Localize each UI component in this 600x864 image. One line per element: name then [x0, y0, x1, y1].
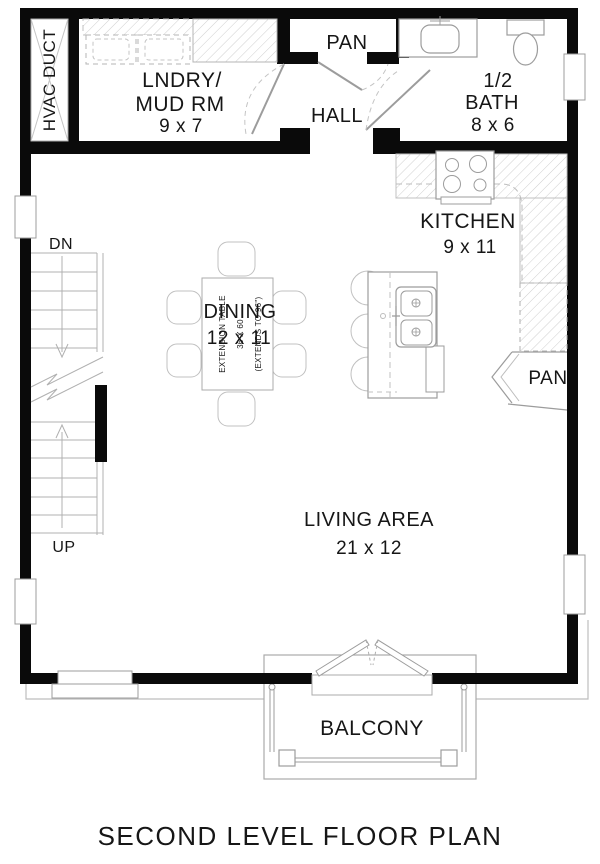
laundry-counter: [83, 19, 193, 35]
laundry-dims: 9 x 7: [159, 116, 203, 137]
pantry-bifold-door: [492, 352, 512, 403]
dining-chair: [218, 242, 255, 276]
wall-hall-bottom-left: [31, 141, 310, 154]
dining-chair: [218, 392, 255, 426]
window-bottom-sill: [52, 684, 138, 698]
wall-stair: [95, 385, 107, 462]
dining-chair: [272, 344, 306, 377]
floor-plan-page: EXTENSION TABLE 36 X 60 (EXTENDS TO 96"): [0, 0, 600, 864]
window-right-bath: [564, 54, 585, 100]
dining-dims: 12 x 11: [207, 328, 271, 349]
kitchen-label: KITCHEN: [420, 210, 516, 233]
pantry-top-label: PAN: [326, 32, 367, 54]
kitchen-dims: 9 x 11: [443, 237, 496, 258]
stove-handle: [441, 197, 491, 204]
refrigerator: [520, 283, 567, 351]
stair-break-line: [31, 372, 103, 402]
railing-post: [441, 750, 457, 766]
dining-chair: [272, 291, 306, 324]
wall-pantry-stub-left: [277, 52, 318, 64]
pantry-door-swing: [362, 64, 388, 90]
railing-post: [279, 750, 295, 766]
wall-left: [20, 8, 31, 196]
kitchen-island: [351, 271, 444, 398]
wall-right: [567, 8, 578, 55]
kitchen-counter-right: [520, 198, 567, 283]
bath-dims: 8 x 6: [471, 115, 515, 136]
pantry-bifold-door-inner: [501, 354, 519, 401]
wall-bottom: [132, 673, 312, 684]
living-label: LIVING AREA: [304, 509, 434, 531]
window-left-upper: [15, 196, 36, 238]
wall-pantry-stub-right: [367, 52, 399, 64]
window-left-lower: [15, 579, 36, 624]
wall-bottom: [432, 673, 578, 684]
wall-right: [567, 99, 578, 556]
dining-label: DINING: [204, 301, 277, 323]
window-bottom: [58, 671, 132, 684]
laundry-label-line2: MUD RM: [135, 93, 224, 116]
stove: [436, 151, 494, 199]
wall-hall-stub-right: [373, 128, 400, 142]
floor-plan-drawing: EXTENSION TABLE 36 X 60 (EXTENDS TO 96"): [0, 0, 600, 864]
bath-label-line1: 1/2: [483, 70, 512, 92]
toilet-bowl: [514, 33, 538, 65]
wall-bottom: [20, 673, 58, 684]
stair-break-line: [31, 357, 103, 387]
dining-chair: [167, 344, 201, 377]
window-right-living: [564, 555, 585, 614]
balcony-label: BALCONY: [320, 717, 424, 740]
vanity-sink: [421, 25, 459, 53]
staircase: [31, 253, 103, 535]
dining-chair: [167, 291, 201, 324]
bath-door-leaf: [366, 70, 430, 130]
bath-door-swing: [366, 71, 398, 130]
hvac-duct-label: HVAC DUCT: [40, 29, 59, 131]
wall-hvac-right: [68, 19, 79, 141]
balcony-door-threshold: [312, 675, 432, 695]
living-dims: 21 x 12: [336, 538, 402, 559]
island-cabinet: [426, 346, 444, 392]
bath-label-line2: BATH: [465, 92, 519, 114]
hall-label: HALL: [311, 105, 363, 127]
island-sink: [396, 287, 436, 347]
stair-down-label: DN: [49, 236, 73, 253]
wall-hall-stub-left: [280, 128, 310, 142]
laundry-label-line1: LNDRY/: [142, 69, 222, 92]
plan-title: SECOND LEVEL FLOOR PLAN: [98, 821, 503, 851]
bath-fixtures: [399, 16, 544, 65]
laundry-cabinet: [193, 19, 277, 62]
pantry-door-leaf: [318, 62, 362, 90]
stair-up-label: UP: [52, 539, 75, 556]
wall-left: [20, 238, 31, 580]
laundry-fixtures: [83, 19, 277, 64]
wall-top: [20, 8, 578, 19]
pantry-right-label: PAN: [528, 368, 567, 389]
